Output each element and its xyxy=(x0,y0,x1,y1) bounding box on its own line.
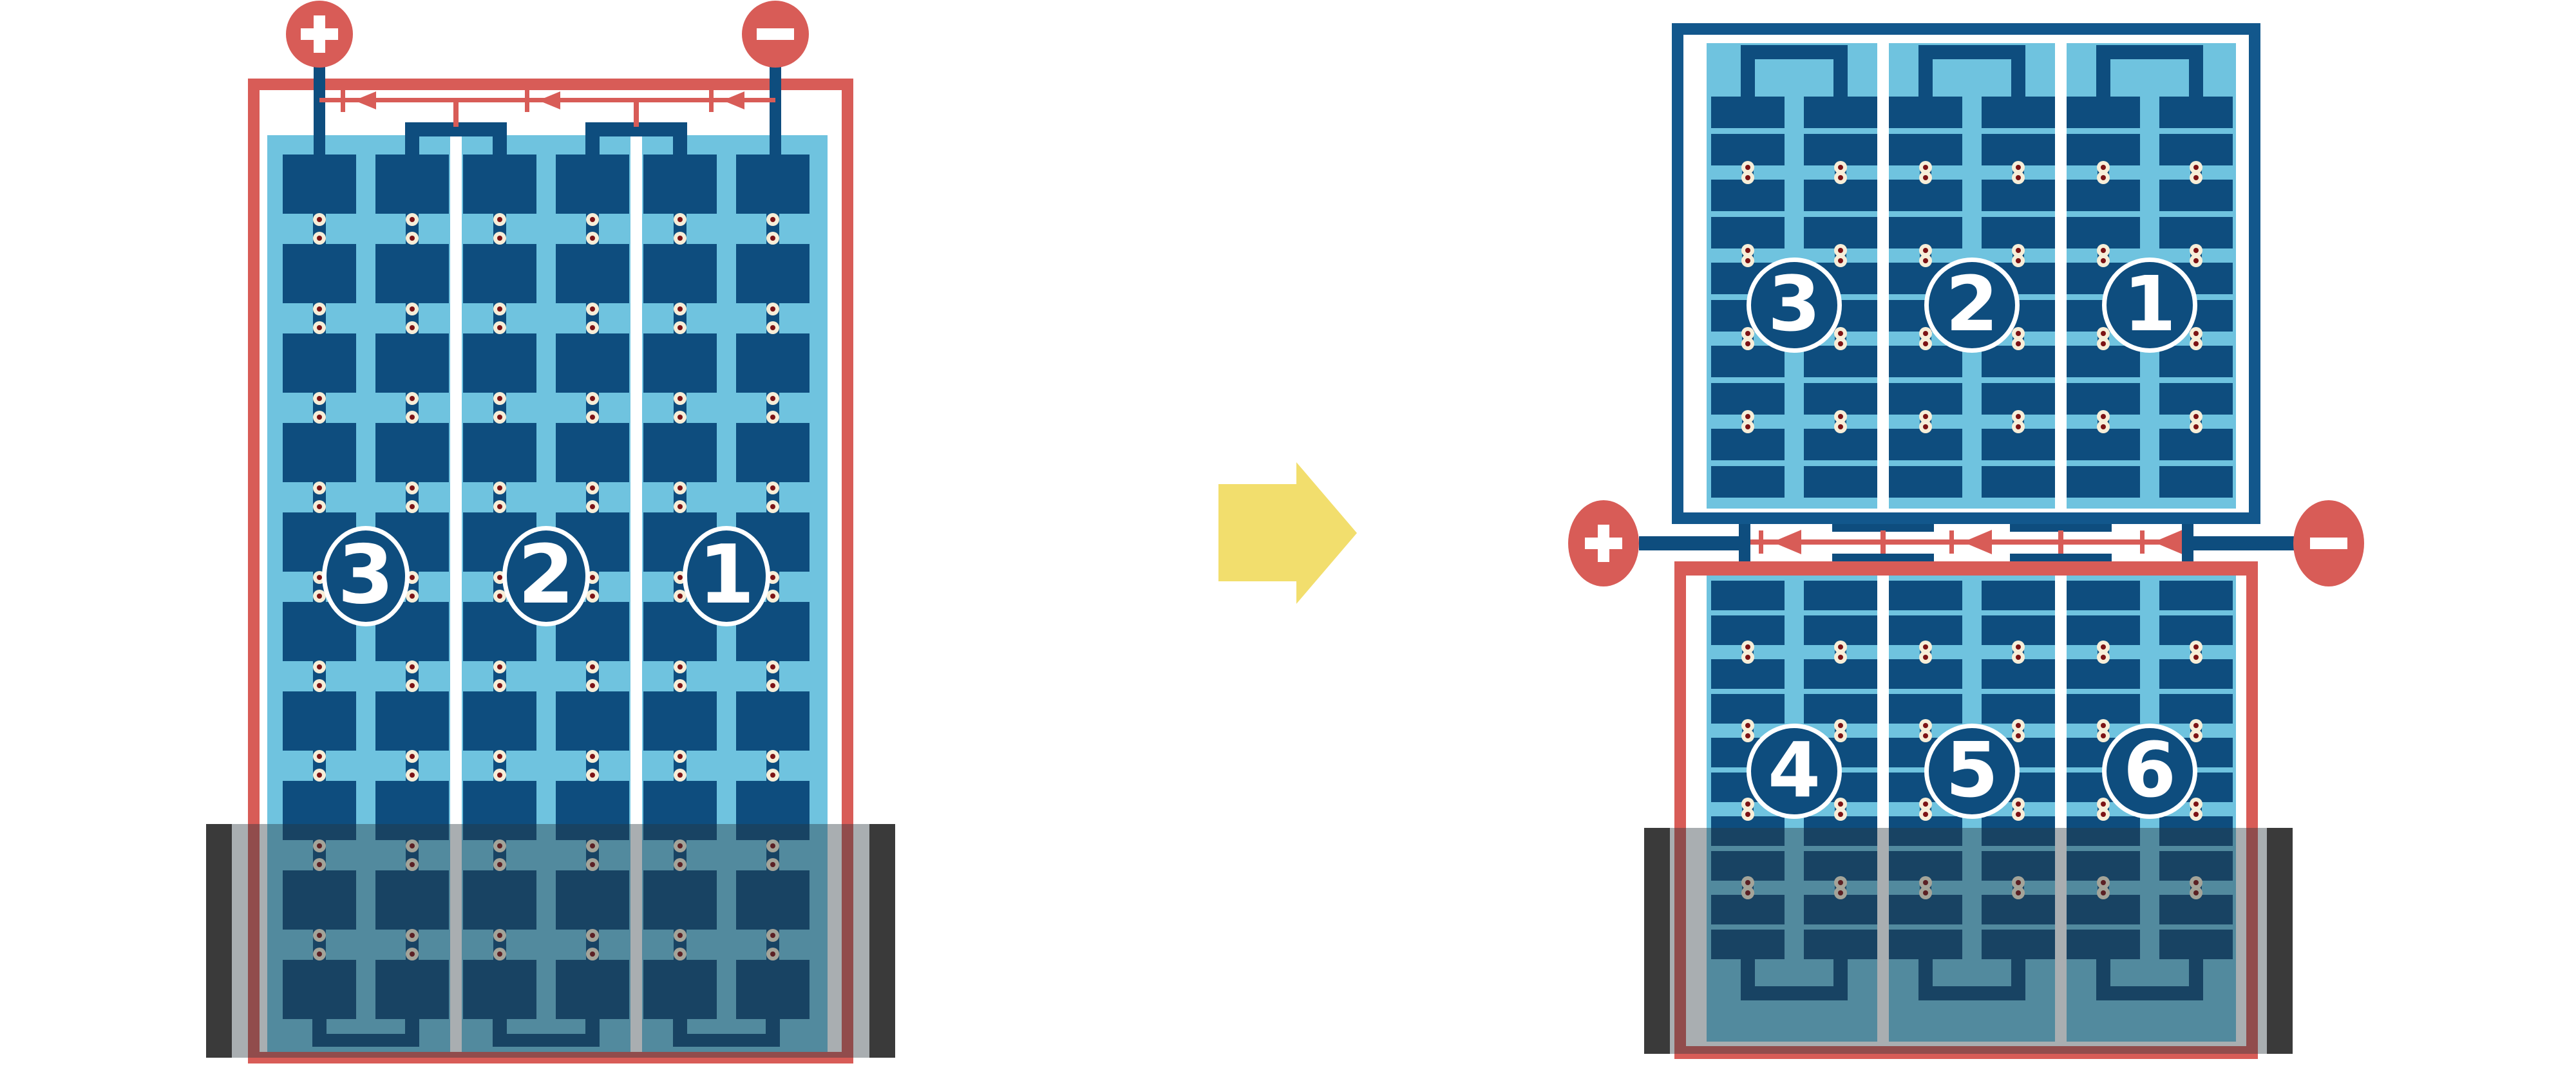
solar-cell xyxy=(556,244,629,303)
solder-joint-core xyxy=(590,236,595,241)
solder-joint-core xyxy=(497,683,502,688)
bypass-diode-symbol xyxy=(538,91,560,109)
solder-joint-core xyxy=(770,594,775,599)
solder-joint-core xyxy=(2101,258,2106,263)
solder-joint-core xyxy=(410,504,415,509)
solar-cell xyxy=(463,423,536,482)
solder-joint-core xyxy=(590,594,595,599)
solder-joint-core xyxy=(1745,414,1750,419)
solder-joint-core xyxy=(2016,733,2021,738)
minus-icon xyxy=(2310,538,2347,549)
solder-joint-core xyxy=(1838,723,1843,728)
solder-joint-core xyxy=(317,236,322,241)
diode-cathode-bar xyxy=(1759,530,1763,554)
solder-joint-core xyxy=(677,754,683,759)
solder-joint-core xyxy=(1838,331,1843,336)
solder-joint-core xyxy=(1838,341,1843,346)
solder-joint-core xyxy=(590,754,595,759)
half-cell xyxy=(1711,97,1785,128)
solder-joint-core xyxy=(770,306,775,312)
solder-joint-core xyxy=(2101,733,2106,738)
diode-cathode-bar xyxy=(525,90,529,112)
solder-joint-core xyxy=(1838,165,1843,170)
busbar-leg xyxy=(673,136,687,156)
positive-lead-wire xyxy=(314,64,325,155)
solder-joint-core xyxy=(1923,165,1928,170)
solder-joint-core xyxy=(2193,733,2199,738)
solder-joint-core xyxy=(497,236,502,241)
right-module-top-frame-top-edge xyxy=(1672,23,2260,35)
solder-joint-core xyxy=(497,754,502,759)
string-separator xyxy=(1877,43,1889,509)
solar-panel-wiring-diagram: 3 2 1 3 2 1 4 5 6 xyxy=(0,0,2576,1068)
solder-joint-core xyxy=(1923,733,1928,738)
solder-joint-core xyxy=(2016,248,2021,253)
solder-joint-core xyxy=(2016,331,2021,336)
transition-arrow xyxy=(1218,462,1357,604)
half-cell xyxy=(1711,466,1785,498)
bypass-diode-symbol xyxy=(1963,530,1992,554)
bypass-diode-symbol xyxy=(723,91,744,109)
right-module-top-frame-left-edge xyxy=(1672,23,1683,524)
solder-joint-core xyxy=(1923,341,1928,346)
solder-joint-core xyxy=(497,594,502,599)
half-cell xyxy=(2159,581,2233,610)
solar-cell xyxy=(643,691,717,751)
solder-joint-core xyxy=(410,773,415,778)
solder-joint-core xyxy=(590,773,595,778)
string-top-leg xyxy=(2189,59,2203,98)
half-cell xyxy=(1804,97,1877,128)
shade-overlay xyxy=(1644,828,2293,1054)
string-number: 1 xyxy=(2123,266,2176,342)
solder-joint-core xyxy=(770,485,775,491)
solder-joint-core xyxy=(317,485,322,491)
solder-joint-core xyxy=(1838,175,1843,180)
solder-joint-core xyxy=(1923,248,1928,253)
solder-joint-core xyxy=(497,325,502,330)
solar-cell xyxy=(556,423,629,482)
solder-joint-core xyxy=(1838,733,1843,738)
half-cell xyxy=(2067,581,2140,610)
solder-joint-core xyxy=(590,485,595,491)
solder-joint-core xyxy=(770,415,775,420)
solder-joint-core xyxy=(410,664,415,670)
solar-cell xyxy=(283,423,356,482)
solar-cell xyxy=(736,333,810,393)
solar-cell xyxy=(556,691,629,751)
solder-joint-core xyxy=(2101,175,2106,180)
solder-joint-core xyxy=(497,485,502,491)
solar-cell xyxy=(736,155,810,214)
diode-tap xyxy=(1880,530,1886,554)
solder-joint-core xyxy=(317,575,322,580)
solder-joint-core xyxy=(770,504,775,509)
solder-joint-core xyxy=(770,396,775,401)
solder-joint-core xyxy=(410,415,415,420)
diode-tap xyxy=(634,102,639,127)
solder-joint-core xyxy=(2193,723,2199,728)
solder-joint-core xyxy=(2193,165,2199,170)
solder-joint-core xyxy=(770,773,775,778)
diode-tap xyxy=(453,102,459,127)
solder-joint-core xyxy=(2101,723,2106,728)
shade-end-cap xyxy=(2267,828,2293,1054)
solder-joint-core xyxy=(1923,812,1928,817)
string-top-bar xyxy=(1918,45,2025,59)
right-bottom-string-label-circle: 5 xyxy=(1924,724,2020,819)
solar-cell xyxy=(556,155,629,214)
solder-joint-core xyxy=(2016,165,2021,170)
solder-joint-core xyxy=(497,415,502,420)
right-module-bottom-frame-top-edge xyxy=(1674,561,2258,576)
string-top-leg xyxy=(1918,59,1933,98)
solder-joint-core xyxy=(2016,424,2021,429)
solar-cell xyxy=(736,691,810,751)
solder-joint-core xyxy=(497,575,502,580)
solder-joint-core xyxy=(1838,801,1843,807)
string-top-bar xyxy=(1741,45,1848,59)
solar-cell xyxy=(283,333,356,393)
half-cell xyxy=(1889,97,1962,128)
solder-joint-core xyxy=(677,217,683,222)
solder-joint-core xyxy=(590,575,595,580)
solder-joint-core xyxy=(1838,812,1843,817)
solder-joint-core xyxy=(2016,175,2021,180)
half-cell xyxy=(1982,581,2055,610)
diode-cathode-bar xyxy=(709,90,714,112)
solder-joint-core xyxy=(590,396,595,401)
solder-joint-core xyxy=(2101,414,2106,419)
solder-joint-core xyxy=(317,415,322,420)
solder-joint-core xyxy=(410,575,415,580)
positive-terminal xyxy=(1568,500,1639,586)
right-top-string-label-circle: 1 xyxy=(2102,258,2197,353)
solder-joint-core xyxy=(2101,655,2106,660)
solder-joint-core xyxy=(2193,414,2199,419)
solder-joint-core xyxy=(1923,644,1928,650)
right-bottom-string-label-circle: 6 xyxy=(2102,724,2197,819)
solder-joint-core xyxy=(677,575,683,580)
solder-joint-core xyxy=(410,396,415,401)
solder-joint-core xyxy=(677,594,683,599)
solder-joint-core xyxy=(2016,414,2021,419)
solder-joint-core xyxy=(410,325,415,330)
plus-icon xyxy=(314,15,325,53)
solder-joint-core xyxy=(2193,424,2199,429)
string-number: 1 xyxy=(698,534,755,615)
solder-joint-core xyxy=(590,683,595,688)
solder-joint-core xyxy=(1745,331,1750,336)
solder-joint-core xyxy=(2016,644,2021,650)
solar-cell xyxy=(643,423,717,482)
plus-icon xyxy=(1598,525,1609,562)
solar-cell xyxy=(375,691,449,751)
transition-arrow-shaft xyxy=(1218,484,1296,581)
solder-joint-core xyxy=(1745,723,1750,728)
right-module-top-frame-right-edge xyxy=(2249,23,2260,524)
solder-joint-core xyxy=(770,683,775,688)
solder-joint-core xyxy=(1745,341,1750,346)
bypass-diode-symbol xyxy=(354,91,376,109)
solder-joint-core xyxy=(410,306,415,312)
solder-joint-core xyxy=(2193,812,2199,817)
solder-joint-core xyxy=(1838,248,1843,253)
solder-joint-core xyxy=(1923,655,1928,660)
solder-joint-core xyxy=(2193,655,2199,660)
string-number: 3 xyxy=(1768,266,1821,342)
solder-joint-core xyxy=(317,217,322,222)
solar-cell xyxy=(463,155,536,214)
solder-joint-core xyxy=(2016,655,2021,660)
solder-joint-core xyxy=(677,485,683,491)
string-number: 3 xyxy=(337,534,394,615)
diode-cathode-bar xyxy=(1949,530,1954,554)
solar-cell xyxy=(375,423,449,482)
solar-cell xyxy=(463,333,536,393)
solder-joint-core xyxy=(2016,341,2021,346)
solder-joint-core xyxy=(317,396,322,401)
diode-cathode-bar xyxy=(2140,530,2145,554)
diode-cathode-bar xyxy=(341,90,345,112)
solar-cell xyxy=(643,244,717,303)
string-top-leg xyxy=(1741,59,1755,98)
solder-joint-core xyxy=(770,575,775,580)
solder-joint-core xyxy=(2101,341,2106,346)
solar-cell xyxy=(643,155,717,214)
solder-joint-core xyxy=(317,325,322,330)
solder-joint-core xyxy=(2101,801,2106,807)
solder-joint-core xyxy=(677,664,683,670)
solder-joint-core xyxy=(497,306,502,312)
positive-lead-wire xyxy=(1639,536,1739,550)
solder-joint-core xyxy=(2193,175,2199,180)
left-string-label-circle: 3 xyxy=(322,526,410,626)
solder-joint-core xyxy=(1923,414,1928,419)
half-cell xyxy=(1889,466,1962,498)
left-string-label-circle: 1 xyxy=(683,526,770,626)
minus-icon xyxy=(757,28,794,40)
string-separator xyxy=(2055,43,2067,509)
shade-end-cap xyxy=(206,824,232,1058)
solder-joint-core xyxy=(677,396,683,401)
solder-joint-core xyxy=(1923,258,1928,263)
solar-cell xyxy=(375,155,449,214)
junction-tab xyxy=(2010,554,2112,561)
solder-joint-core xyxy=(1838,644,1843,650)
solder-joint-core xyxy=(590,217,595,222)
solder-joint-core xyxy=(2193,801,2199,807)
string-top-leg xyxy=(2096,59,2110,98)
solar-cell xyxy=(283,244,356,303)
solder-joint-core xyxy=(677,325,683,330)
solder-joint-core xyxy=(1745,424,1750,429)
half-cell xyxy=(2159,466,2233,498)
busbar-leg xyxy=(493,136,507,156)
solder-joint-core xyxy=(770,236,775,241)
right-top-string-label-circle: 2 xyxy=(1924,258,2020,353)
half-cell xyxy=(2159,97,2233,128)
solder-joint-core xyxy=(1745,655,1750,660)
right-bottom-string-label-circle: 4 xyxy=(1747,724,1842,819)
solder-joint-core xyxy=(2193,341,2199,346)
half-cell xyxy=(1982,97,2055,128)
solder-joint-core xyxy=(317,594,322,599)
busbar-leg xyxy=(405,136,419,156)
solder-joint-core xyxy=(410,217,415,222)
solder-joint-core xyxy=(317,664,322,670)
solder-joint-core xyxy=(677,773,683,778)
transition-arrow-head xyxy=(1296,462,1357,604)
solder-joint-core xyxy=(497,664,502,670)
string-number: 4 xyxy=(1768,732,1821,808)
solder-joint-core xyxy=(677,504,683,509)
solder-joint-core xyxy=(497,504,502,509)
solder-joint-core xyxy=(2193,258,2199,263)
solder-joint-core xyxy=(2016,723,2021,728)
solar-cell xyxy=(556,333,629,393)
solar-cell xyxy=(375,244,449,303)
solder-joint-core xyxy=(2193,331,2199,336)
negative-terminal xyxy=(2293,500,2364,586)
diode-tap xyxy=(2058,530,2063,554)
solder-joint-core xyxy=(590,306,595,312)
solder-joint-core xyxy=(497,217,502,222)
string-top-leg xyxy=(2011,59,2025,98)
solder-joint-core xyxy=(1745,248,1750,253)
solder-joint-core xyxy=(497,773,502,778)
string-top-leg xyxy=(1833,59,1848,98)
solar-cell xyxy=(375,333,449,393)
solar-cell xyxy=(643,333,717,393)
solder-joint-core xyxy=(1923,801,1928,807)
solder-joint-core xyxy=(590,325,595,330)
solder-joint-core xyxy=(677,236,683,241)
right-top-string-label-circle: 3 xyxy=(1747,258,1842,353)
solder-joint-core xyxy=(1923,723,1928,728)
solder-joint-core xyxy=(2101,165,2106,170)
solder-joint-core xyxy=(677,415,683,420)
solder-joint-core xyxy=(1923,424,1928,429)
solder-joint-core xyxy=(677,683,683,688)
solar-cell xyxy=(463,691,536,751)
shade-end-cap xyxy=(1644,828,1670,1054)
solder-joint-core xyxy=(1923,175,1928,180)
solder-joint-core xyxy=(317,683,322,688)
bypass-diode-symbol xyxy=(2154,530,2183,554)
solder-joint-core xyxy=(2101,331,2106,336)
solder-joint-core xyxy=(590,664,595,670)
solar-cell xyxy=(736,244,810,303)
solder-joint-core xyxy=(410,236,415,241)
half-cell xyxy=(1889,581,1962,610)
solder-joint-core xyxy=(2101,644,2106,650)
junction-stub xyxy=(2182,524,2193,561)
solder-joint-core xyxy=(770,217,775,222)
string-number: 6 xyxy=(2123,732,2176,808)
solder-joint-core xyxy=(2193,644,2199,650)
bypass-diode-symbol xyxy=(1772,530,1801,554)
solder-joint-core xyxy=(1838,258,1843,263)
string-number: 5 xyxy=(1946,732,1998,808)
positive-terminal xyxy=(286,1,353,68)
solder-joint-core xyxy=(770,754,775,759)
solder-joint-core xyxy=(1745,812,1750,817)
solar-cell xyxy=(736,423,810,482)
left-string-label-circle: 2 xyxy=(502,526,590,626)
half-cell xyxy=(1804,466,1877,498)
string-number: 2 xyxy=(518,534,574,615)
solder-joint-core xyxy=(2101,248,2106,253)
negative-terminal xyxy=(742,1,809,68)
half-cell xyxy=(1982,466,2055,498)
solder-joint-core xyxy=(1745,644,1750,650)
solder-joint-core xyxy=(1838,414,1843,419)
solder-joint-core xyxy=(2016,812,2021,817)
solder-joint-core xyxy=(1838,655,1843,660)
solder-joint-core xyxy=(317,754,322,759)
solder-joint-core xyxy=(1745,801,1750,807)
solder-joint-core xyxy=(770,664,775,670)
half-cell xyxy=(1804,581,1877,610)
solar-cell xyxy=(283,691,356,751)
solder-joint-core xyxy=(590,504,595,509)
solder-joint-core xyxy=(317,504,322,509)
solder-joint-core xyxy=(1838,424,1843,429)
busbar-leg xyxy=(585,136,600,156)
solder-joint-core xyxy=(410,594,415,599)
solder-joint-core xyxy=(410,683,415,688)
solder-joint-core xyxy=(317,306,322,312)
solder-joint-core xyxy=(1745,165,1750,170)
solder-joint-core xyxy=(677,306,683,312)
solder-joint-core xyxy=(2193,248,2199,253)
junction-tab xyxy=(1832,554,1934,561)
junction-stub xyxy=(1739,524,1750,561)
string-top-bar xyxy=(2096,45,2203,59)
solar-cell xyxy=(283,155,356,214)
solder-joint-core xyxy=(1745,733,1750,738)
solder-joint-core xyxy=(317,773,322,778)
solder-joint-core xyxy=(1745,175,1750,180)
half-cell xyxy=(1711,581,1785,610)
solder-joint-core xyxy=(1745,258,1750,263)
half-cell xyxy=(2067,466,2140,498)
negative-lead-wire xyxy=(2193,536,2298,550)
solder-joint-core xyxy=(497,396,502,401)
solar-cell xyxy=(463,244,536,303)
shade-end-cap xyxy=(869,824,895,1058)
solder-joint-core xyxy=(2016,258,2021,263)
shade-overlay xyxy=(206,824,895,1058)
negative-lead-wire xyxy=(770,64,781,155)
left-module-frame-top-edge xyxy=(248,79,853,90)
solder-joint-core xyxy=(410,485,415,491)
solder-joint-core xyxy=(770,325,775,330)
string-number: 2 xyxy=(1946,266,1998,342)
solder-joint-core xyxy=(2101,812,2106,817)
solder-joint-core xyxy=(590,415,595,420)
solder-joint-core xyxy=(1923,331,1928,336)
solder-joint-core xyxy=(2101,424,2106,429)
half-cell xyxy=(2067,97,2140,128)
right-module-top-frame-bottom-edge xyxy=(1672,512,2260,524)
solder-joint-core xyxy=(2016,801,2021,807)
solder-joint-core xyxy=(410,754,415,759)
